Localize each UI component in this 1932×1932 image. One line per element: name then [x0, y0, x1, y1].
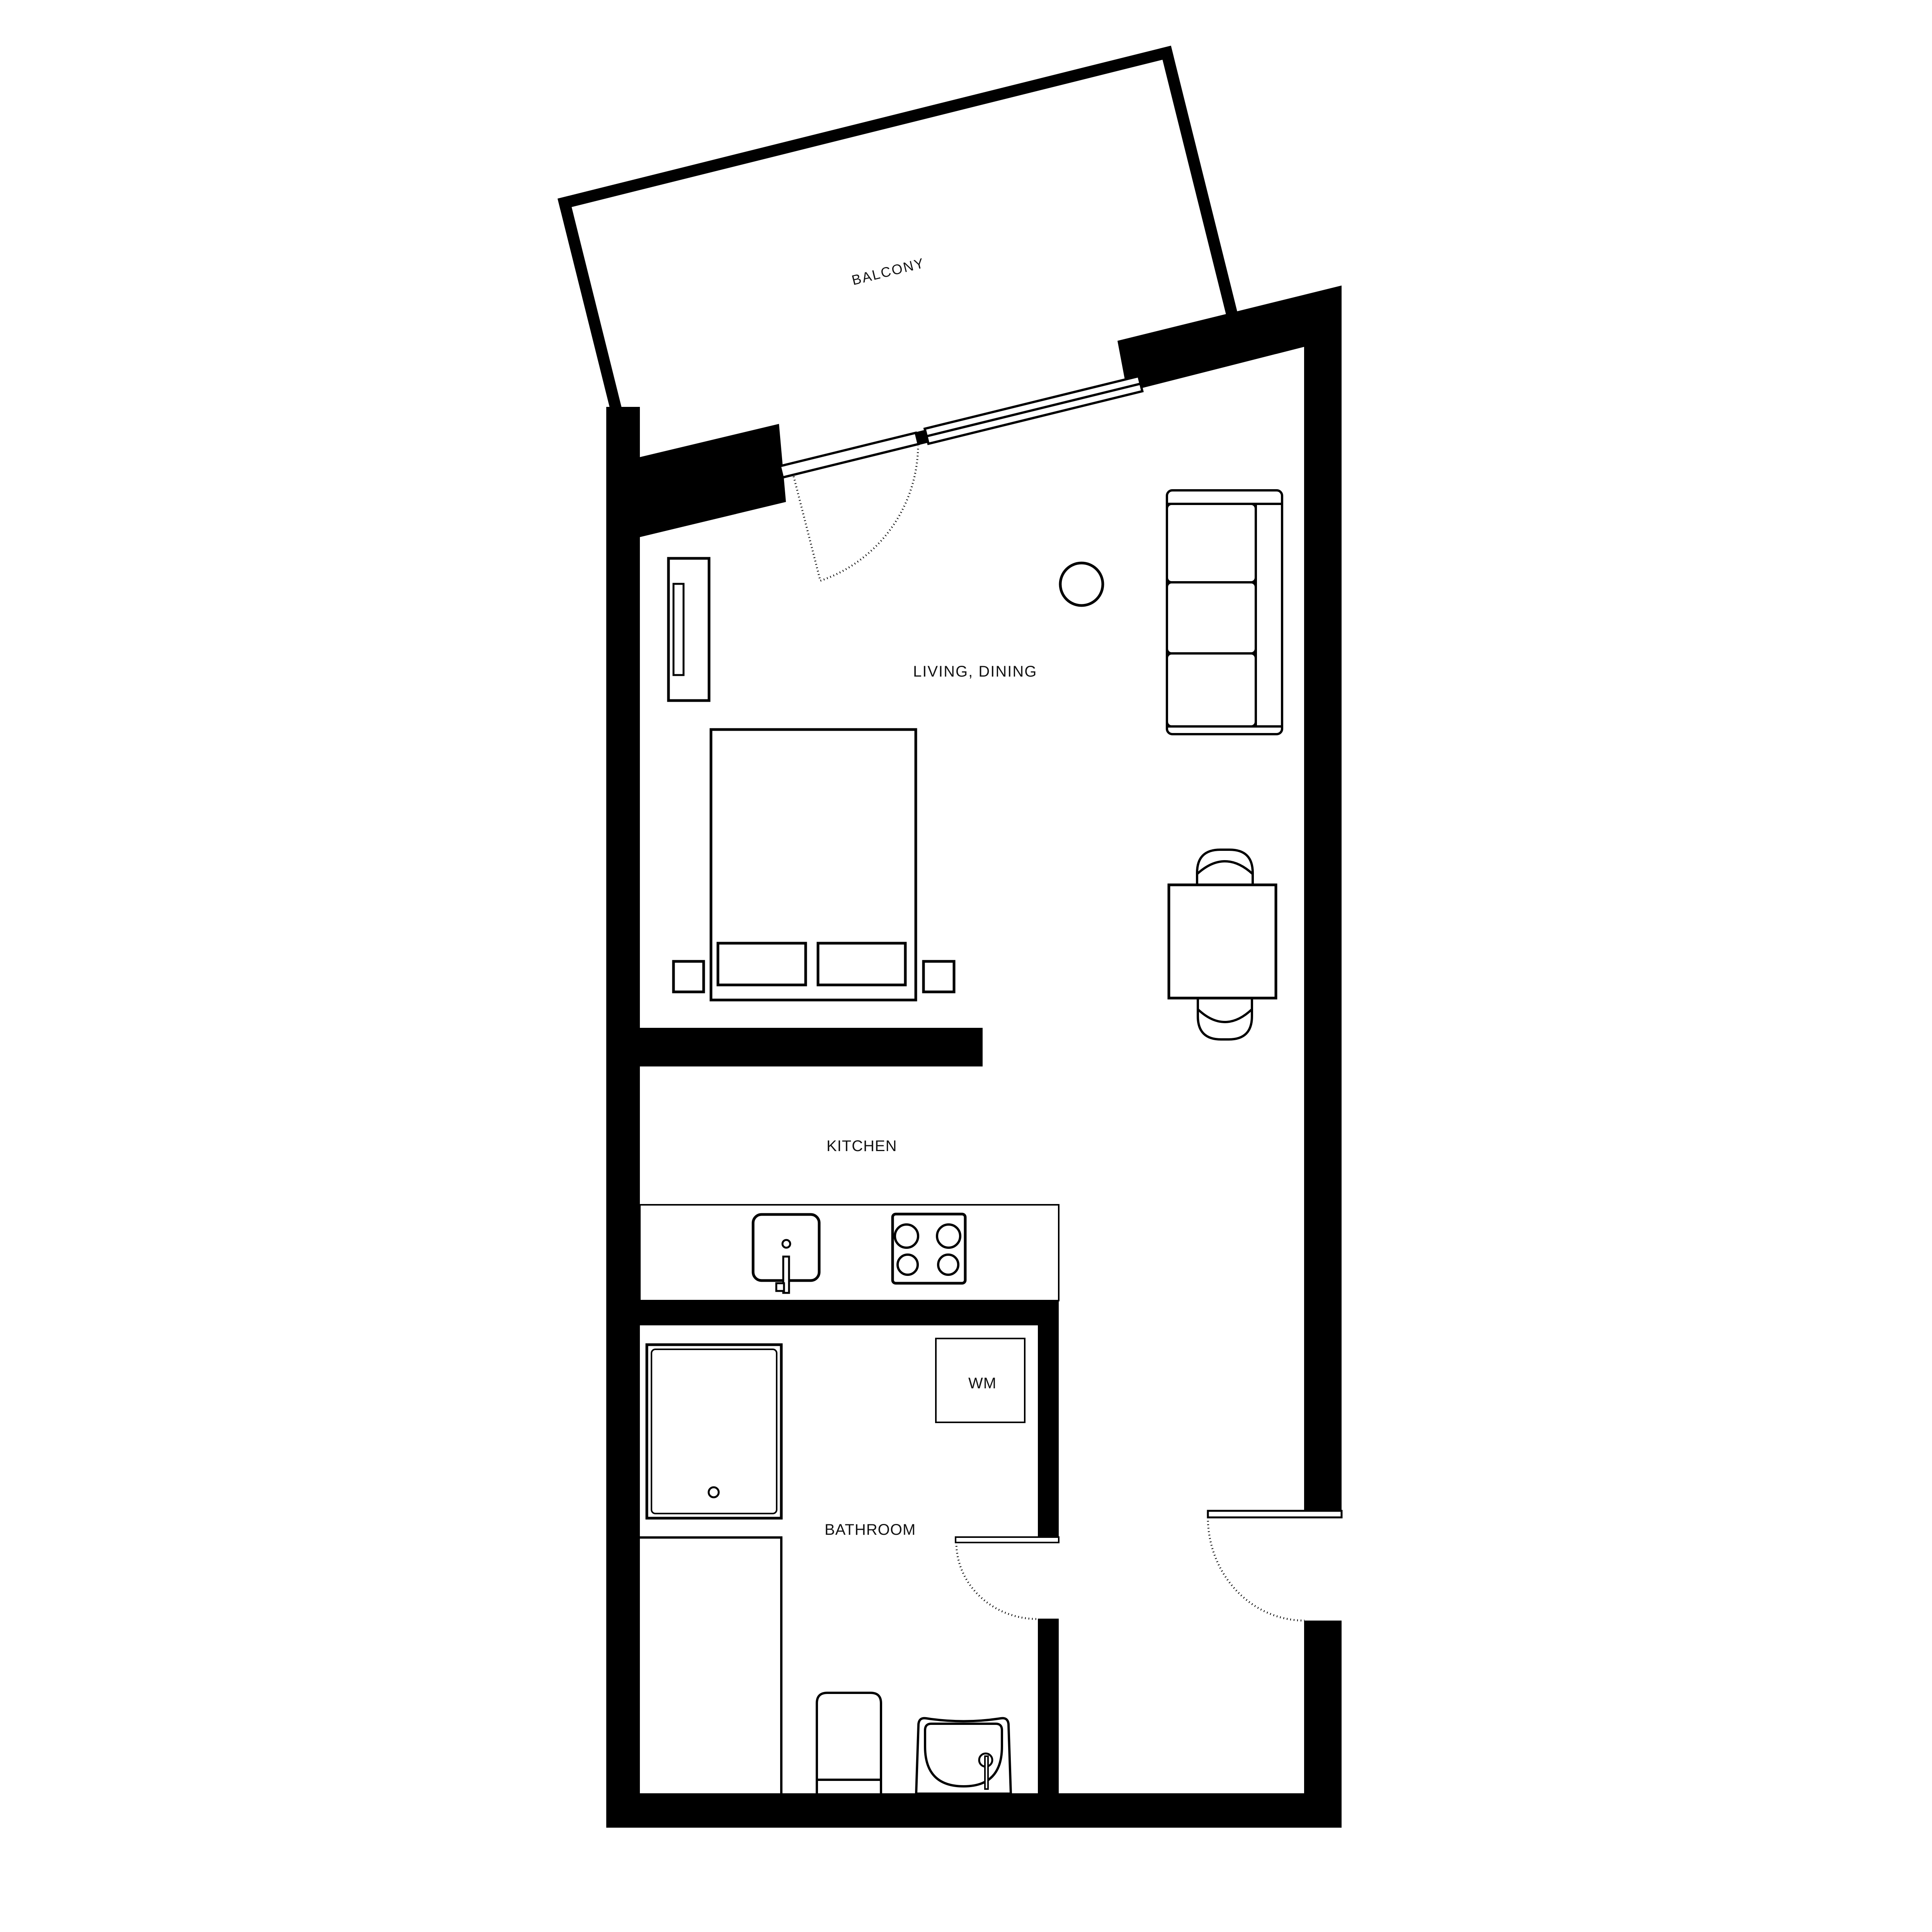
svg-text:LIVING, DINING: LIVING, DINING [913, 663, 1037, 680]
svg-text:KITCHEN: KITCHEN [827, 1138, 897, 1155]
svg-text:BATHROOM: BATHROOM [825, 1521, 916, 1538]
svg-text:WM: WM [968, 1375, 997, 1392]
